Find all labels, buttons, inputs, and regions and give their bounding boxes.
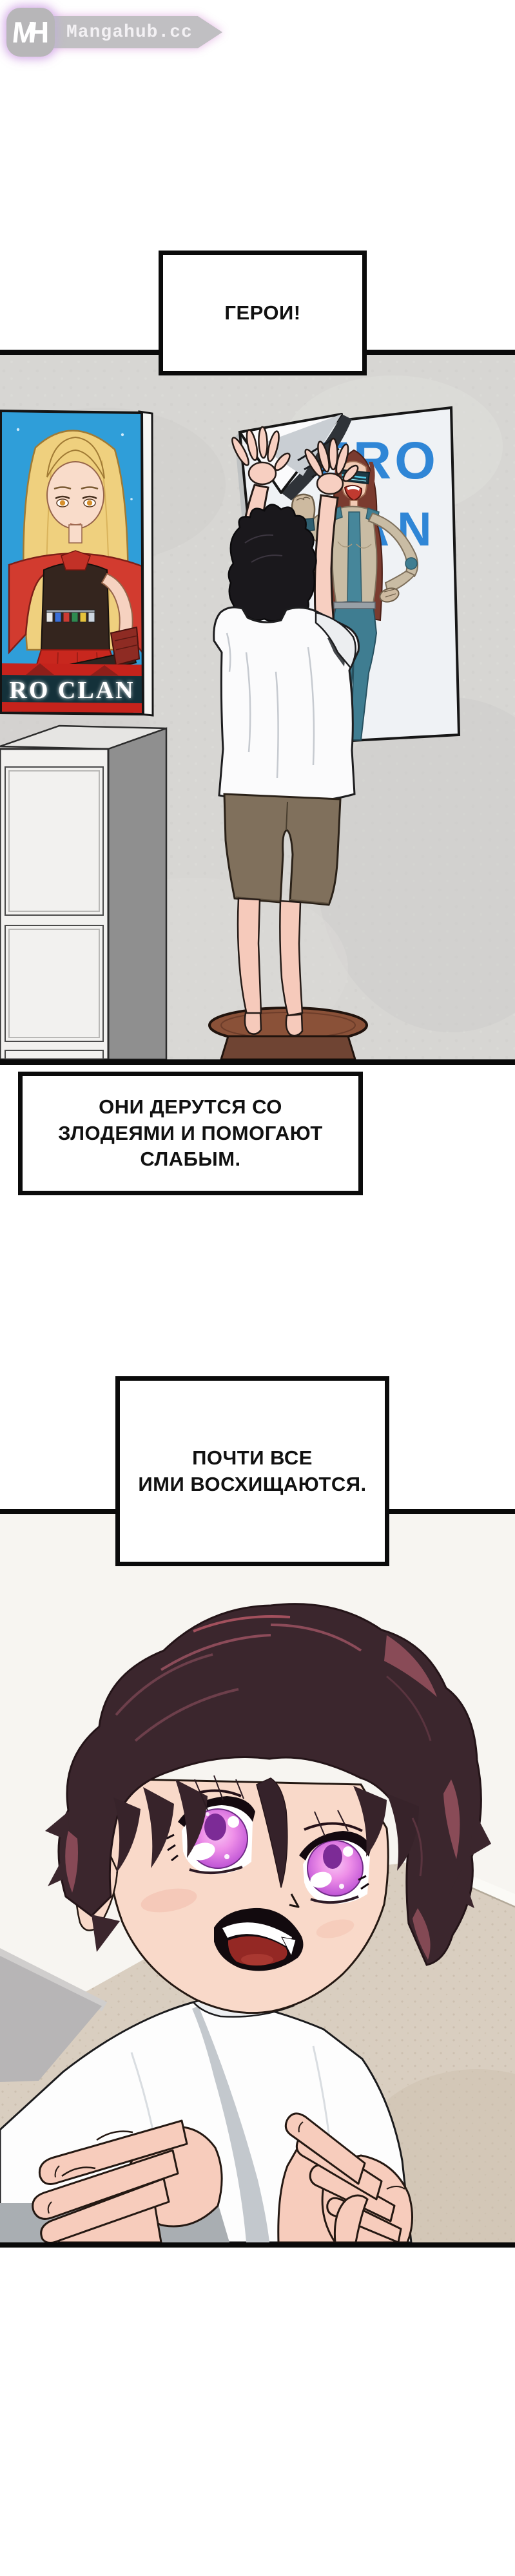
- webtoon-reader-page: M H Mangahub.cc: [0, 0, 515, 2576]
- caption-box-3: ПОЧТИ ВСЕ ИМИ ВОСХИЩАЮТСЯ.: [115, 1376, 389, 1566]
- caption-3-line-2: ИМИ ВОСХИЩАЮТСЯ.: [138, 1472, 366, 1498]
- panel-1-illustration: RO CLAN HERO CLAN: [0, 350, 515, 1065]
- panel-boy-closeup[interactable]: [0, 1509, 515, 2248]
- left-poster-title: RO CLAN: [9, 677, 135, 704]
- site-name-text: Mangahub.cc: [47, 23, 193, 43]
- left-poster: RO CLAN: [1, 411, 153, 715]
- caption-3-line-1: ПОЧТИ ВСЕ: [192, 1445, 313, 1472]
- logo-letter-m: M: [10, 15, 39, 50]
- panel-hanging-posters[interactable]: RO CLAN HERO CLAN: [0, 350, 515, 1065]
- caption-2-line-1: ОНИ ДЕРУТСЯ СО: [99, 1094, 282, 1121]
- logo-banner[interactable]: Mangahub.cc: [47, 16, 222, 48]
- caption-2-line-3: СЛАБЫМ.: [140, 1146, 240, 1173]
- caption-box-2: ОНИ ДЕРУТСЯ СО ЗЛОДЕЯМИ И ПОМОГАЮТ СЛАБЫ…: [18, 1072, 363, 1195]
- caption-2-line-2: ЗЛОДЕЯМИ И ПОМОГАЮТ: [58, 1121, 323, 1147]
- drawer-cabinet: [0, 726, 166, 1059]
- panel-3-illustration: [0, 1509, 515, 2248]
- site-logo[interactable]: M H Mangahub.cc: [6, 8, 222, 57]
- caption-1-text: ГЕРОИ!: [224, 300, 300, 327]
- mh-logo-icon[interactable]: M H: [6, 8, 55, 57]
- caption-box-1: ГЕРОИ!: [159, 251, 367, 375]
